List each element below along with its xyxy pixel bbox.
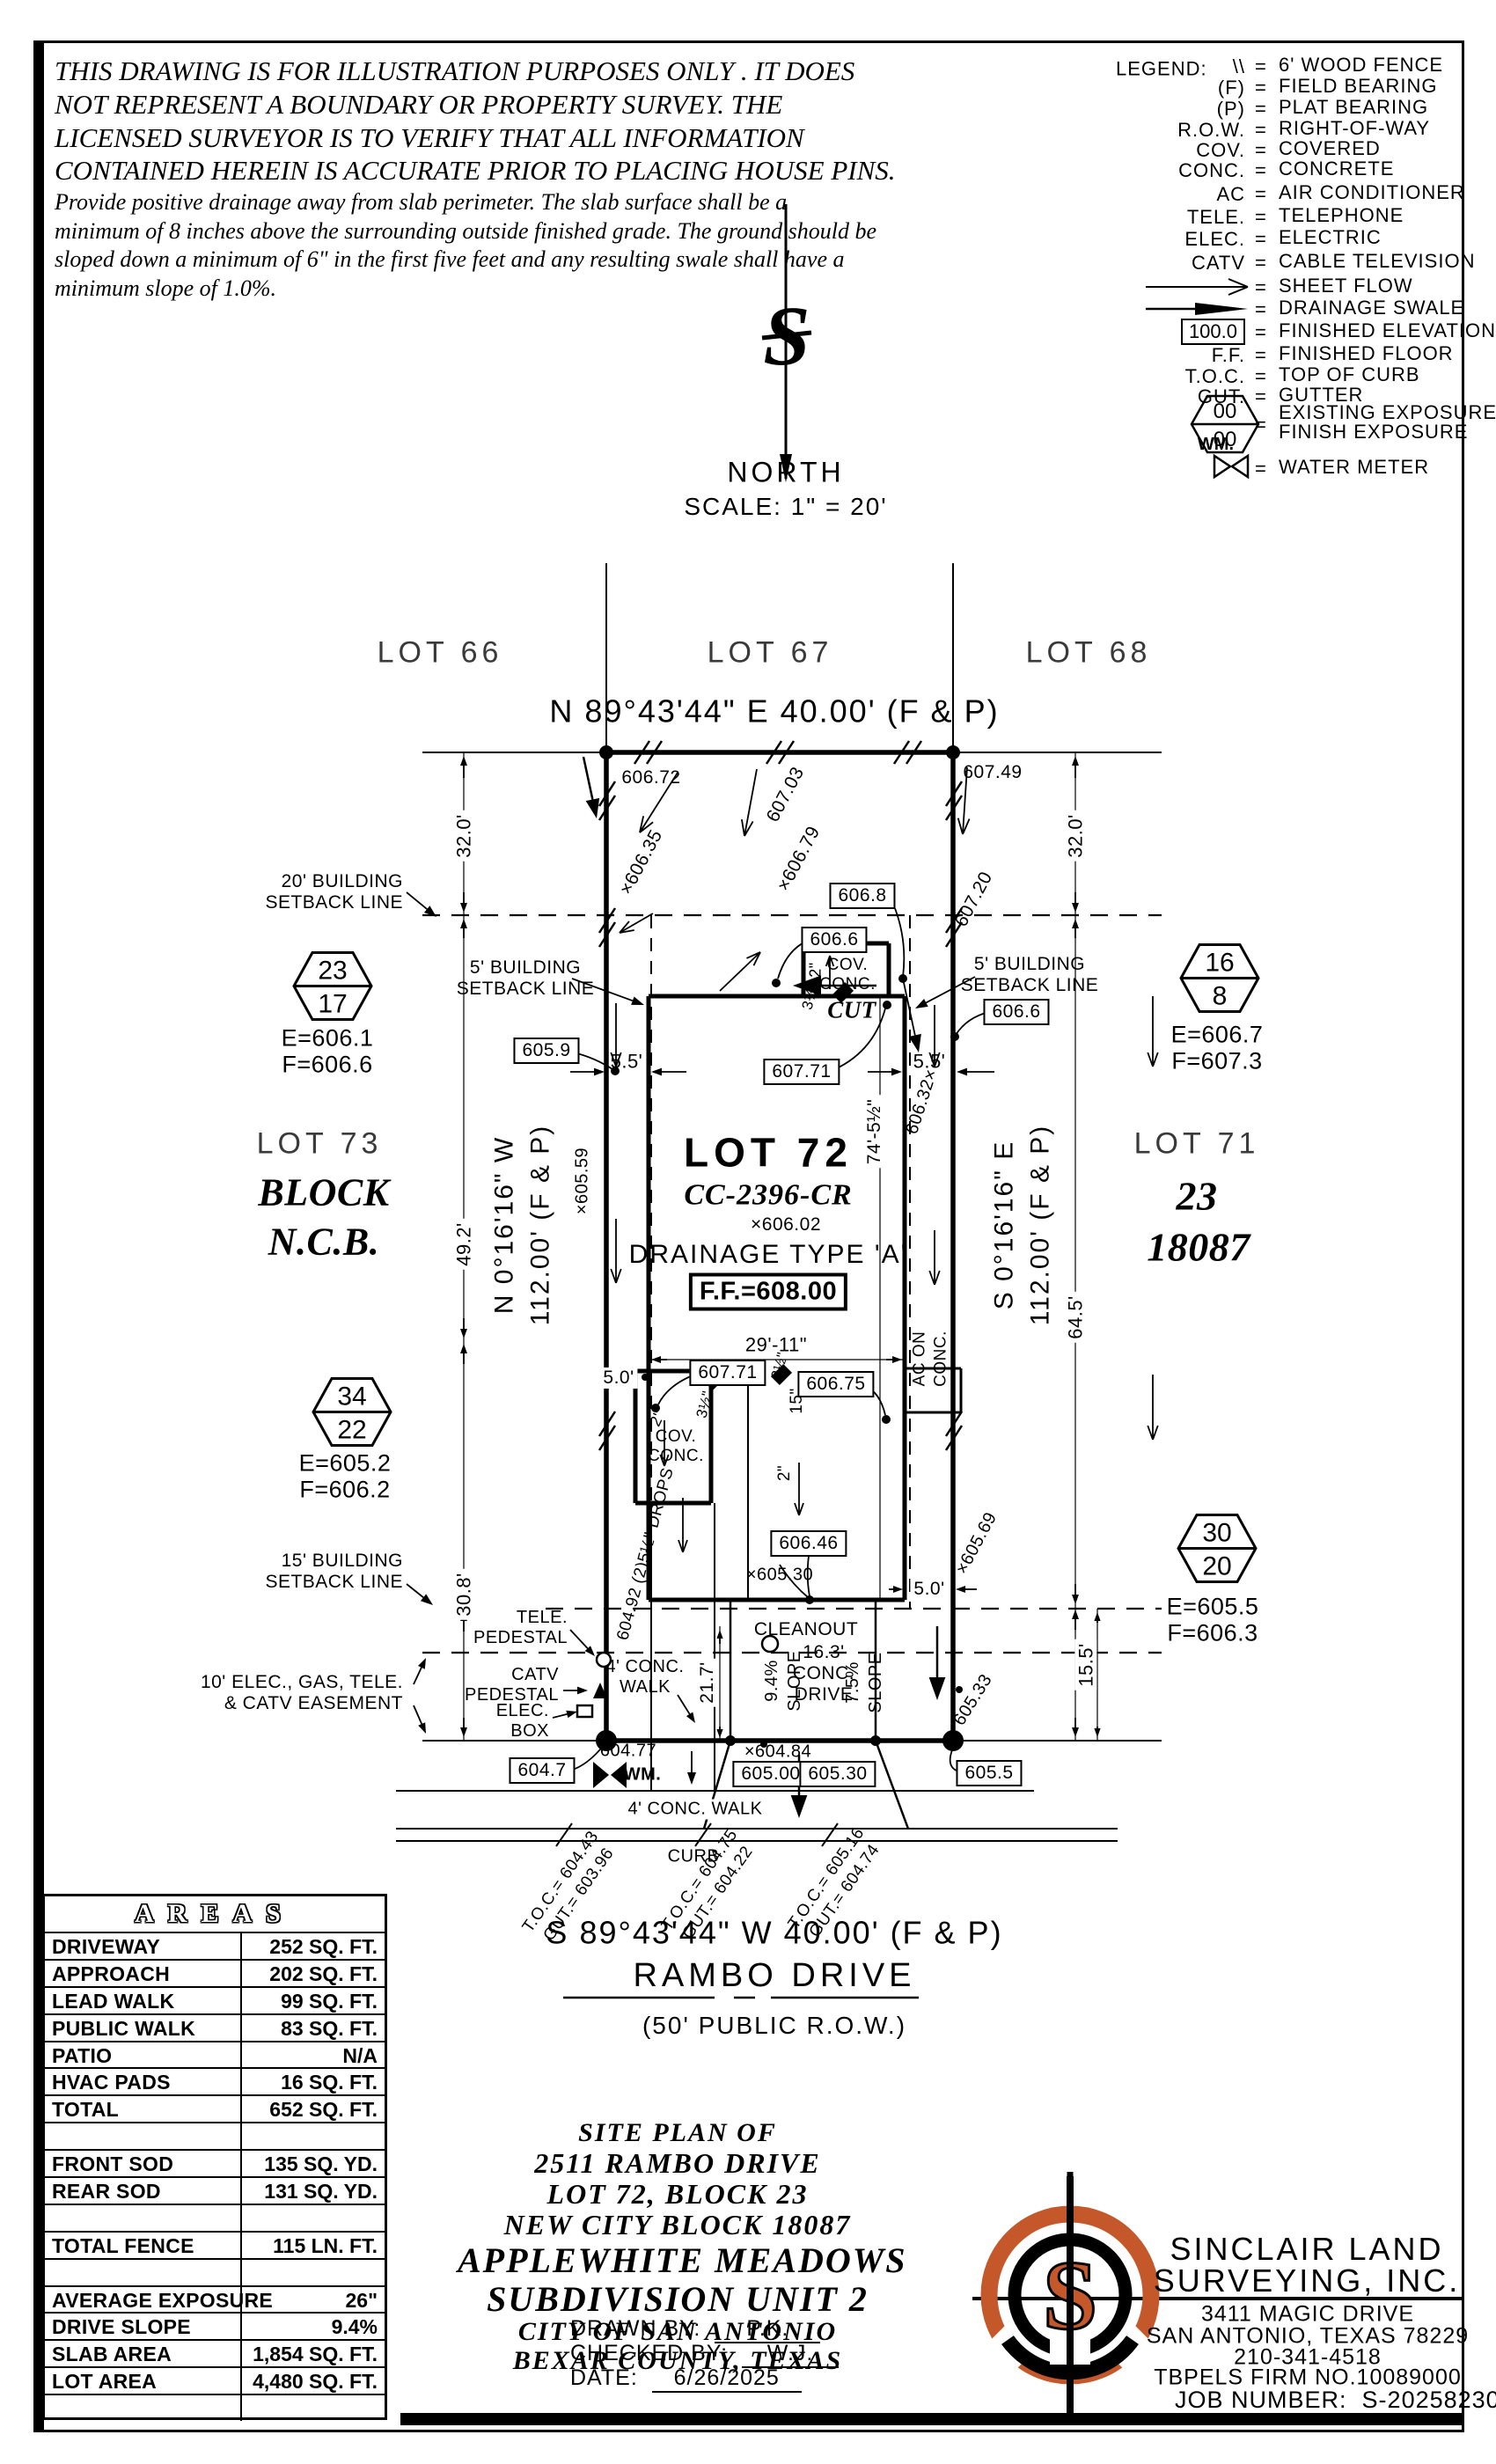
arrowhead	[893, 1586, 903, 1593]
plan-label: F=606.2	[299, 1476, 390, 1503]
areas-row-value: 4,480 SQ. FT.	[242, 2368, 385, 2394]
plan-label: 4' CONC. WALK	[606, 1657, 685, 1698]
areas-row-value: 99 SQ. FT.	[242, 1988, 385, 2013]
survey-point	[956, 1686, 963, 1693]
plan-label: BLOCK	[258, 1171, 389, 1216]
plan-label: COV. CONC.	[819, 956, 876, 994]
plan-label: LOT 67	[708, 635, 833, 670]
plan-label: 5.0'	[910, 1579, 948, 1600]
areas-table-row: LOT AREA 4,480 SQ. FT.	[45, 2366, 385, 2394]
plan-line	[876, 1741, 908, 1829]
drawn-by-row: DRAWN BY: P.K.	[570, 2316, 820, 2343]
areas-row-value	[242, 2260, 385, 2285]
areas-table-row	[45, 2258, 385, 2285]
arrowhead	[460, 1344, 467, 1353]
arrowhead	[687, 1772, 696, 1785]
checked-by-label: CHECKED BY:	[570, 2341, 728, 2365]
boxed-elevation: 604.7	[509, 1757, 575, 1784]
plan-line	[822, 1823, 838, 1846]
areas-row-label: DRIVE SLOPE	[45, 2314, 242, 2339]
arrowhead	[956, 1586, 965, 1593]
plan-line	[556, 1823, 572, 1846]
plan-label: N 0°16'16" W 112.00' (F & P)	[488, 1125, 559, 1326]
areas-row-label: FRONT SOD	[45, 2151, 242, 2176]
plan-label: ×604.84	[744, 1742, 811, 1763]
survey-point	[642, 1374, 649, 1381]
plan-line	[414, 1668, 422, 1684]
areas-row-label: TOTAL	[45, 2096, 242, 2122]
areas-row-label: HVAC PADS	[45, 2069, 242, 2094]
title-block-line: NEW CITY BLOCK 18087	[458, 2209, 898, 2241]
survey-point	[882, 1415, 891, 1424]
plan-label: 5.5'	[611, 1050, 643, 1072]
arrowhead	[1072, 756, 1079, 766]
areas-row-value	[242, 2205, 385, 2231]
areas-row-label: AVERAGE EXPOSURE	[45, 2287, 242, 2313]
checked-by-row: CHECKED BY: W.J.	[570, 2341, 839, 2368]
arrowhead	[1094, 1728, 1100, 1737]
arrowhead	[686, 1712, 695, 1723]
areas-table-row: FRONT SOD 135 SQ. YD.	[45, 2149, 385, 2176]
arrowhead	[1094, 1612, 1100, 1621]
areas-table-row: LEAD WALK 99 SQ. FT.	[45, 1986, 385, 2013]
plan-label: F=606.6	[282, 1051, 372, 1078]
areas-row-value: 83 SQ. FT.	[242, 2015, 385, 2041]
elec-box-icon	[577, 1705, 592, 1717]
arrowhead	[594, 1068, 605, 1076]
areas-row-value: 252 SQ. FT.	[242, 1933, 385, 1959]
plan-label: 5' BUILDING SETBACK LINE	[961, 954, 1099, 996]
svg-text:30: 30	[1202, 1519, 1231, 1548]
arrowhead	[421, 1594, 433, 1605]
areas-row-label	[45, 2260, 242, 2285]
title-block-line: LOT 72, BLOCK 23	[458, 2178, 898, 2211]
plan-line	[553, 1714, 567, 1718]
survey-point	[870, 1735, 881, 1746]
areas-row-value: 135 SQ. YD.	[242, 2151, 385, 2176]
plan-label: 30.8'	[452, 1569, 474, 1620]
subject-lot-number: LOT 72	[684, 1130, 853, 1177]
areas-row-label: LEAD WALK	[45, 1988, 242, 2013]
arrowhead	[716, 1630, 722, 1639]
areas-row-label: SLAB AREA	[45, 2341, 242, 2366]
plan-label: LOT 73	[257, 1126, 383, 1161]
plan-label: 21.7'	[697, 1658, 718, 1706]
arrowhead	[418, 1658, 426, 1669]
survey-point	[725, 1735, 736, 1746]
areas-table-row	[45, 2204, 385, 2231]
drainage-type-label: DRAINAGE TYPE 'A'	[629, 1240, 908, 1271]
plan-label: ×605.59	[573, 1148, 593, 1214]
plan-line	[695, 1823, 711, 1846]
areas-table-row: HVAC PADS 16 SQ. FT.	[45, 2067, 385, 2094]
plan-label: 2"	[775, 1465, 795, 1481]
arrowhead	[418, 1722, 426, 1734]
areas-row-value: 26"	[242, 2287, 385, 2313]
plan-label: 5.5'	[913, 1050, 946, 1072]
areas-row-value: 16 SQ. FT.	[242, 2069, 385, 2094]
plan-label: 4' CONC. WALK	[625, 1800, 766, 1820]
areas-table-row: PATIO N/A	[45, 2041, 385, 2068]
street-name: RAMBO DRIVE	[633, 1957, 915, 1996]
plan-label: 7.5% SLOPE	[841, 1652, 887, 1712]
plan-label: 2"	[807, 962, 825, 977]
areas-table: AREAS DRIVEWAY 252 SQ. FT.APPROACH 202 S…	[42, 1894, 387, 2420]
arrowhead	[957, 1068, 967, 1076]
plan-label: S 0°16'16" E 112.00' (F & P)	[987, 1125, 1059, 1326]
areas-table-row	[45, 2122, 385, 2149]
areas-table-row: DRIVEWAY 252 SQ. FT.	[45, 1932, 385, 1959]
areas-row-value: N/A	[242, 2042, 385, 2068]
plan-label: WM.	[624, 1765, 662, 1786]
svg-text:23: 23	[318, 957, 347, 986]
areas-row-label: TOTAL FENCE	[45, 2233, 242, 2258]
survey-point	[805, 1595, 814, 1604]
survey-point	[883, 1001, 891, 1009]
areas-row-label: PATIO	[45, 2042, 242, 2068]
subject-plan-code: CC-2396-CR	[684, 1177, 852, 1212]
boxed-elevation: 606.75	[797, 1371, 874, 1397]
areas-table-row: AVERAGE EXPOSURE 26"	[45, 2285, 385, 2313]
plan-label: 604.77	[600, 1742, 656, 1762]
arrowhead	[460, 1329, 467, 1338]
svg-text:16: 16	[1205, 949, 1234, 978]
areas-row-label: LOT AREA	[45, 2368, 242, 2394]
arrowhead	[460, 756, 467, 766]
plan-label: LOT 68	[1026, 635, 1152, 670]
boxed-elevation: 607.71	[763, 1059, 840, 1085]
areas-row-value: 131 SQ. YD.	[242, 2178, 385, 2204]
boxed-elevation: 605.00	[732, 1761, 809, 1787]
areas-table-row: DRIVE SLOPE 9.4%	[45, 2312, 385, 2339]
plan-line	[414, 1705, 422, 1724]
arrowhead	[631, 996, 644, 1005]
drawn-by-label: DRAWN BY:	[570, 2316, 700, 2341]
areas-row-label: REAR SOD	[45, 2178, 242, 2204]
areas-row-label: DRIVEWAY	[45, 1933, 242, 1959]
boxed-elevation: 605.9	[513, 1038, 579, 1064]
lot-corner-hexagon: 34 22	[312, 1377, 392, 1452]
boxed-elevation: 606.6	[801, 927, 867, 953]
arrowhead	[566, 1711, 577, 1718]
arrowhead	[1072, 1595, 1079, 1604]
areas-row-label: PUBLIC WALK	[45, 2015, 242, 2041]
plan-label: CLEANOUT	[754, 1619, 858, 1640]
areas-table-row	[45, 2394, 385, 2421]
plan-label: 64.5'	[1064, 1292, 1086, 1343]
plan-label: CUT	[827, 996, 876, 1023]
plan-label: 10' ELEC., GAS, TELE. & CATV EASEMENT	[201, 1672, 403, 1714]
plan-label: LOT 66	[378, 635, 503, 670]
boxed-elevation: 607.71	[689, 1360, 766, 1386]
arrowhead	[1072, 1610, 1079, 1619]
plan-label: E=606.7	[1171, 1021, 1264, 1048]
plan-line	[407, 892, 427, 909]
arrowhead	[460, 919, 467, 928]
plan-label: F=607.3	[1171, 1047, 1262, 1074]
svg-text:34: 34	[337, 1382, 366, 1412]
plan-line	[620, 913, 653, 933]
survey-point	[772, 979, 781, 987]
plan-label: ×605.30	[746, 1566, 813, 1586]
areas-table-row: TOTAL 652 SQ. FT.	[45, 2094, 385, 2122]
boxed-elevation: 606.8	[829, 883, 895, 909]
areas-table-title: AREAS	[45, 1896, 385, 1932]
areas-table-row: REAR SOD 131 SQ. YD.	[45, 2176, 385, 2204]
bearing-north-label: N 89°43'44" E 40.00' (F & P)	[549, 693, 999, 729]
survey-point	[942, 1730, 964, 1751]
svg-text:22: 22	[337, 1416, 366, 1445]
plan-label: E=606.1	[282, 1024, 374, 1052]
date-value: 6/26/2025	[652, 2365, 802, 2393]
lot-corner-hexagon: 23 17	[292, 951, 373, 1026]
arrowhead	[651, 1356, 661, 1363]
areas-row-value	[242, 2123, 385, 2149]
arrowhead	[586, 798, 599, 818]
title-block-line: SITE PLAN OF	[458, 2118, 898, 2148]
plan-label: 32.0'	[1064, 810, 1086, 862]
arrowhead	[791, 1795, 808, 1818]
boxed-elevation: 606.6	[983, 999, 1049, 1025]
plan-line	[407, 1584, 423, 1597]
plan-label: 15.5'	[1074, 1639, 1096, 1690]
arrowhead	[1072, 903, 1079, 913]
areas-table-row: APPROACH 202 SQ. FT.	[45, 1959, 385, 1986]
svg-text:17: 17	[318, 990, 347, 1019]
surveyor-logo: S	[969, 2194, 1171, 2396]
plan-label: 49.2'	[452, 1219, 474, 1270]
plan-label: E=605.2	[299, 1449, 392, 1477]
svg-text:8: 8	[1213, 982, 1228, 1011]
plan-label: 5' BUILDING SETBACK LINE	[457, 957, 595, 1000]
drawn-by-value: P.K.	[715, 2316, 820, 2343]
plan-label: 15' BUILDING SETBACK LINE	[265, 1551, 403, 1593]
areas-row-value: 652 SQ. FT.	[242, 2096, 385, 2122]
areas-table-row: SLAB AREA 1,854 SQ. FT.	[45, 2339, 385, 2366]
arrowhead	[460, 1727, 467, 1737]
areas-row-value: 202 SQ. FT.	[242, 1961, 385, 1986]
firm-name-2: SURVEYING, INC.	[1154, 2262, 1460, 2299]
date-row: DATE: 6/26/2025	[570, 2365, 802, 2393]
plan-label: 20' BUILDING SETBACK LINE	[265, 871, 403, 913]
plan-label: AC ON CONC.	[909, 1331, 951, 1387]
boxed-elevation: 605.5	[956, 1760, 1022, 1786]
plan-label: 5.0'	[599, 1368, 637, 1389]
areas-row-label	[45, 2395, 242, 2421]
lot-corner-hexagon: 30 20	[1177, 1514, 1258, 1588]
survey-point	[599, 745, 613, 759]
plan-label: 32.0'	[452, 810, 474, 862]
title-block-line: 2511 RAMBO DRIVE	[458, 2147, 898, 2180]
lot-corner-hexagon: 16 8	[1179, 943, 1260, 1018]
arrowhead	[891, 1068, 902, 1076]
survey-point	[950, 1032, 959, 1041]
plan-label: 74'-5½"	[864, 1096, 885, 1169]
areas-row-value: 9.4%	[242, 2314, 385, 2339]
svg-text:20: 20	[1202, 1552, 1231, 1581]
plan-label: E=605.5	[1167, 1593, 1259, 1620]
plan-label: TELE. PEDESTAL	[473, 1608, 568, 1648]
arrowhead	[929, 1677, 946, 1700]
survey-point	[898, 974, 907, 983]
boxed-elevation: 605.30	[799, 1761, 876, 1787]
areas-row-label	[45, 2205, 242, 2231]
finished-floor-elevation: F.F.=608.00	[689, 1273, 847, 1311]
areas-row-value: 115 LN. FT.	[242, 2233, 385, 2258]
water-meter-icon	[593, 1762, 609, 1788]
areas-row-value: 1,854 SQ. FT.	[242, 2341, 385, 2366]
title-block-line: APPLEWHITE MEADOWS	[458, 2240, 898, 2281]
arrowhead	[892, 1356, 902, 1363]
plan-label: 607.49	[963, 762, 1022, 783]
date-label: DATE:	[570, 2365, 638, 2390]
arrowhead	[651, 1068, 662, 1076]
arrowhead	[716, 1729, 722, 1738]
street-row-label: (50' PUBLIC R.O.W.)	[642, 2012, 906, 2040]
plan-line	[678, 1695, 690, 1714]
plan-label: LOT 71	[1134, 1126, 1260, 1161]
areas-row-label	[45, 2123, 242, 2149]
plan-label: 18087	[1147, 1225, 1250, 1272]
areas-table-row: PUBLIC WALK 83 SQ. FT.	[45, 2013, 385, 2041]
arrowhead	[460, 903, 467, 913]
plan-label: 606.72	[621, 767, 680, 788]
areas-row-label: APPROACH	[45, 1961, 242, 1986]
plan-label: COV. CONC.	[648, 1427, 704, 1466]
arrowhead	[1072, 919, 1079, 928]
plan-line	[742, 819, 744, 836]
plan-line	[958, 818, 963, 834]
plan-label: ELEC. BOX	[496, 1701, 549, 1742]
checked-by-value: W.J.	[742, 2341, 839, 2368]
plan-label: F=606.3	[1167, 1619, 1258, 1646]
survey-point	[946, 745, 960, 759]
plan-line	[720, 952, 760, 991]
arrowhead	[577, 1687, 588, 1695]
areas-row-value	[242, 2395, 385, 2421]
plan-label: ×606.02	[751, 1214, 821, 1236]
plan-line	[583, 757, 592, 799]
site-plan-sheet: THIS DRAWING IS FOR ILLUSTRATION PURPOSE…	[0, 0, 1496, 2464]
title-block-line: SUBDIVISION UNIT 2	[458, 2278, 898, 2320]
plan-label: CATV PEDESTAL	[465, 1665, 559, 1705]
plan-label: N.C.B.	[268, 1221, 379, 1265]
arrowhead	[1072, 1727, 1079, 1737]
arrowhead	[915, 999, 928, 1008]
plan-label: 23	[1177, 1174, 1218, 1221]
boxed-elevation: 606.46	[770, 1530, 847, 1557]
firm-job-number: JOB NUMBER: S-202582304	[1175, 2387, 1496, 2414]
plan-line	[570, 1630, 588, 1648]
bearing-south-label: S 89°43'44" W 40.00' (F & P)	[546, 1914, 1002, 1950]
areas-table-row: TOTAL FENCE 115 LN. FT.	[45, 2231, 385, 2258]
